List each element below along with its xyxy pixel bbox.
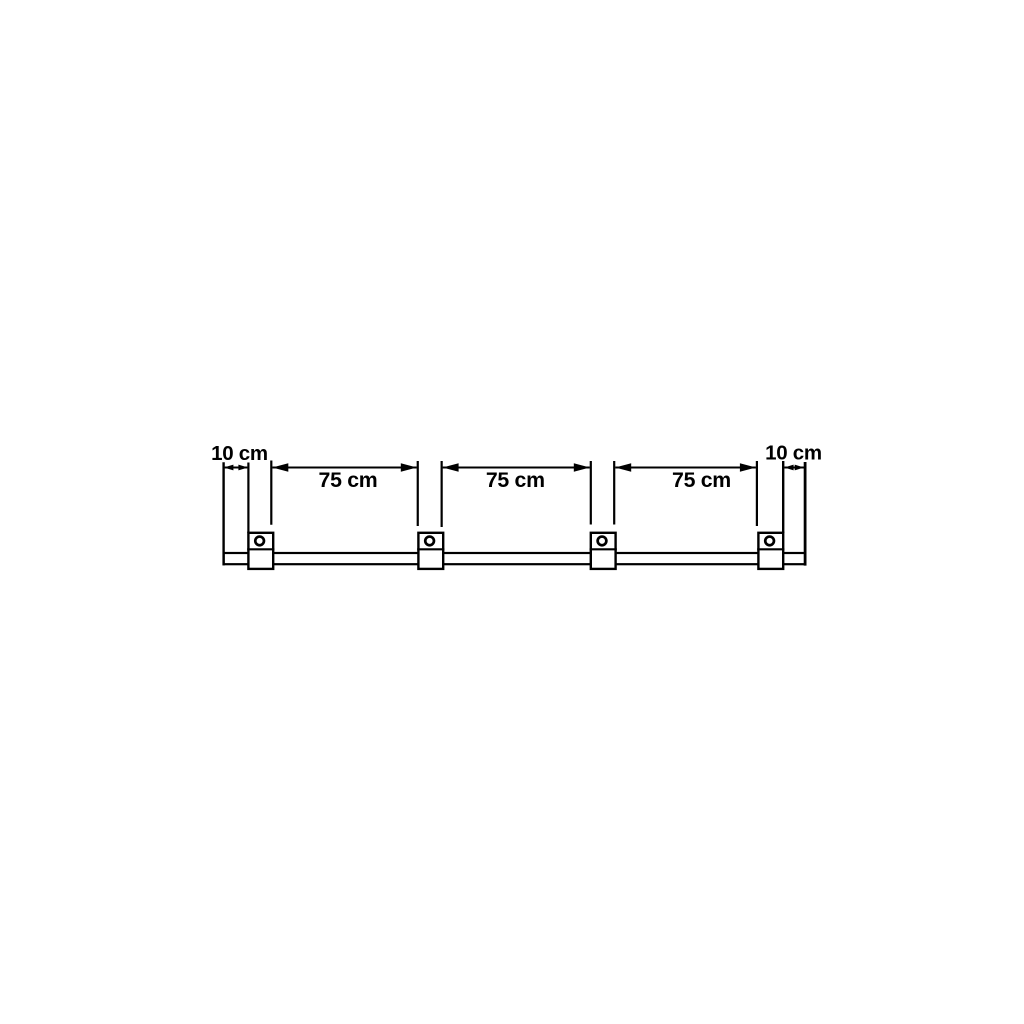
svg-text:75 cm: 75 cm xyxy=(486,468,545,492)
svg-text:10 cm: 10 cm xyxy=(765,441,822,464)
svg-text:10 cm: 10 cm xyxy=(211,442,268,465)
svg-text:75 cm: 75 cm xyxy=(319,468,378,492)
svg-text:75 cm: 75 cm xyxy=(672,468,731,492)
